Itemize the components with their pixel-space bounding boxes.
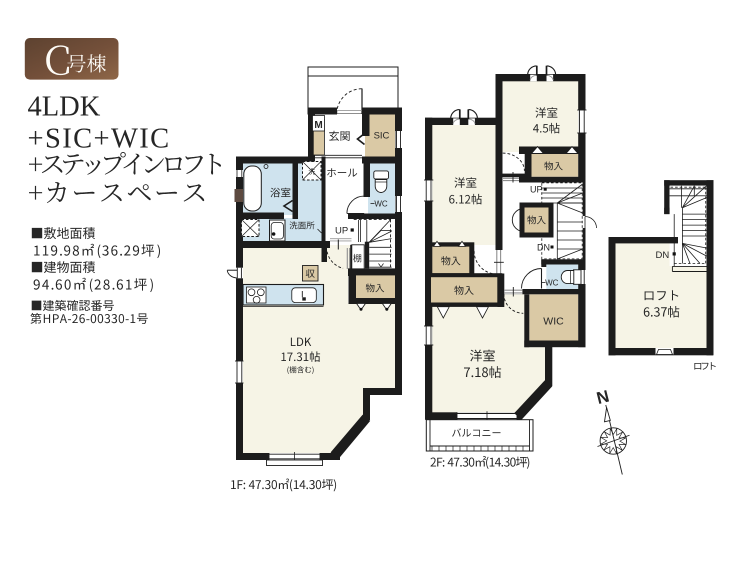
svg-text:+SIC+WIC: +SIC+WIC: [28, 124, 171, 155]
svg-text:UP: UP: [530, 185, 543, 195]
svg-text:WC: WC: [545, 279, 559, 288]
svg-text:M: M: [314, 120, 322, 131]
svg-text:SIC: SIC: [374, 131, 390, 142]
svg-text:4LDK: 4LDK: [28, 92, 101, 123]
svg-text:WIC: WIC: [543, 316, 564, 328]
svg-text:DN: DN: [656, 250, 670, 261]
svg-text:WC: WC: [374, 200, 388, 209]
svg-text:UP: UP: [335, 226, 348, 237]
svg-text:DN: DN: [537, 243, 550, 253]
